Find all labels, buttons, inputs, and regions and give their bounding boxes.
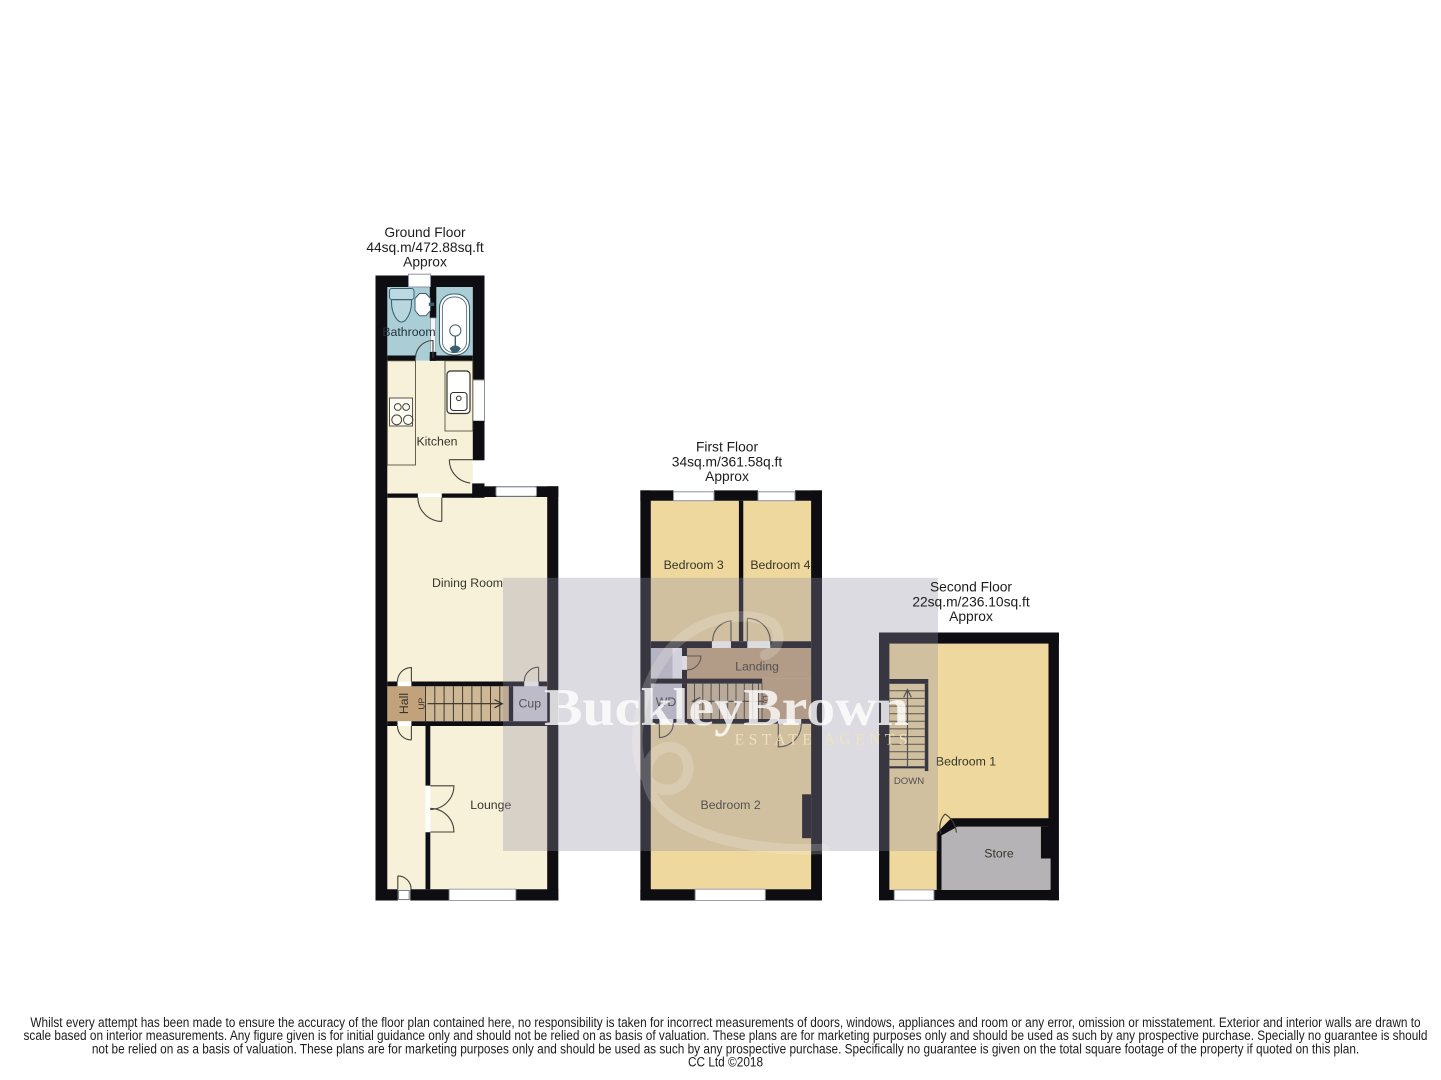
svg-text:34sq.m/361.58q.ft: 34sq.m/361.58q.ft: [672, 454, 783, 469]
svg-text:Bathroom: Bathroom: [382, 325, 435, 339]
svg-text:Approx: Approx: [403, 255, 447, 270]
svg-text:Kitchen: Kitchen: [416, 435, 457, 449]
svg-text:UP: UP: [417, 697, 427, 709]
svg-text:Approx: Approx: [949, 609, 993, 624]
svg-text:Store: Store: [984, 846, 1014, 860]
svg-text:Bedroom 4: Bedroom 4: [750, 558, 810, 572]
svg-text:Hall: Hall: [397, 693, 411, 714]
svg-text:Second Floor: Second Floor: [930, 580, 1012, 595]
svg-text:22sq.m/236.10sq.ft: 22sq.m/236.10sq.ft: [912, 594, 1030, 609]
svg-text:ESTATE AGENTS: ESTATE AGENTS: [735, 731, 912, 748]
svg-text:First Floor: First Floor: [696, 440, 758, 455]
svg-text:Approx: Approx: [705, 469, 749, 484]
svg-text:Ground Floor: Ground Floor: [384, 225, 466, 240]
svg-text:Dining Room: Dining Room: [432, 576, 503, 590]
svg-text:CC Ltd ©2018: CC Ltd ©2018: [688, 1054, 763, 1070]
svg-text:Bedroom 3: Bedroom 3: [664, 558, 724, 572]
svg-text:44sq.m/472.88sq.ft: 44sq.m/472.88sq.ft: [366, 240, 484, 255]
svg-text:Bedroom 1: Bedroom 1: [936, 754, 996, 768]
svg-text:BuckleyBrown: BuckleyBrown: [544, 679, 909, 737]
